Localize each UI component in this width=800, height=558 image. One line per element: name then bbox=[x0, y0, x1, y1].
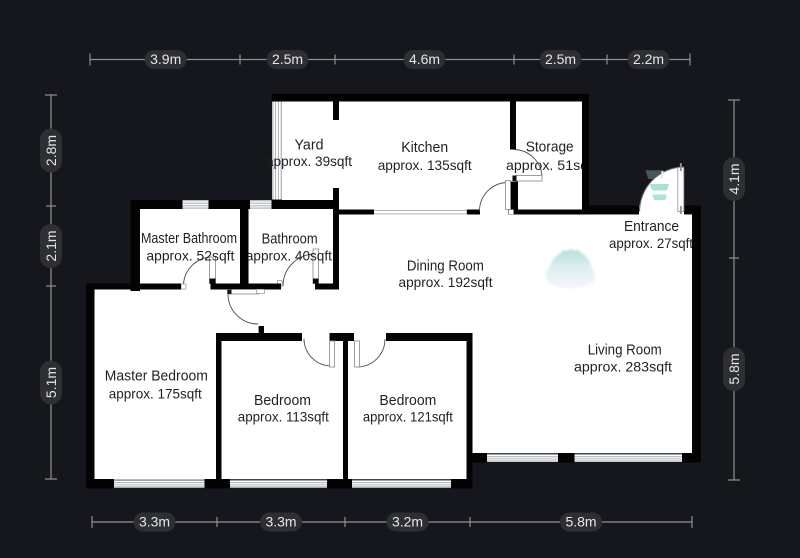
svg-text:approx. 135sqft: approx. 135sqft bbox=[378, 157, 472, 173]
svg-text:approx. 27sqft: approx. 27sqft bbox=[609, 235, 693, 251]
svg-text:Kitchen: Kitchen bbox=[401, 139, 448, 156]
svg-text:4.6m: 4.6m bbox=[409, 51, 440, 67]
svg-text:approx. 192sqft: approx. 192sqft bbox=[399, 274, 493, 290]
svg-text:Yard: Yard bbox=[295, 137, 324, 154]
svg-text:approx. 121sqft: approx. 121sqft bbox=[363, 409, 453, 425]
svg-text:approx. 52sqft: approx. 52sqft bbox=[146, 248, 234, 264]
svg-text:Storage: Storage bbox=[526, 139, 574, 156]
svg-text:Bedroom: Bedroom bbox=[254, 392, 311, 409]
svg-text:Bathroom: Bathroom bbox=[262, 231, 318, 248]
svg-text:approx. 283sqft: approx. 283sqft bbox=[574, 359, 672, 375]
svg-text:3.9m: 3.9m bbox=[150, 51, 181, 67]
svg-text:2.5m: 2.5m bbox=[545, 51, 576, 67]
svg-text:4.1m: 4.1m bbox=[726, 163, 742, 194]
svg-text:2.8m: 2.8m bbox=[43, 135, 59, 166]
svg-text:2.2m: 2.2m bbox=[633, 51, 664, 67]
svg-text:Entrance: Entrance bbox=[624, 218, 679, 235]
svg-text:3.2m: 3.2m bbox=[392, 514, 423, 530]
svg-text:2.5m: 2.5m bbox=[272, 51, 303, 67]
svg-text:approx. 40sqft: approx. 40sqft bbox=[246, 248, 332, 264]
svg-text:5.1m: 5.1m bbox=[43, 367, 59, 398]
svg-text:5.8m: 5.8m bbox=[726, 353, 742, 384]
svg-text:5.8m: 5.8m bbox=[565, 514, 596, 530]
svg-text:2.1m: 2.1m bbox=[43, 230, 59, 261]
svg-text:approx. 113sqft: approx. 113sqft bbox=[238, 409, 329, 425]
svg-text:3.3m: 3.3m bbox=[139, 514, 170, 530]
svg-text:approx. 39sqft: approx. 39sqft bbox=[266, 153, 352, 169]
svg-text:Master Bathroom: Master Bathroom bbox=[141, 230, 237, 247]
svg-text:Master Bedroom: Master Bedroom bbox=[105, 368, 208, 385]
svg-text:3.3m: 3.3m bbox=[265, 514, 296, 530]
svg-text:Dining Room: Dining Room bbox=[407, 258, 484, 275]
svg-text:Bedroom: Bedroom bbox=[379, 392, 436, 409]
svg-text:Living Room: Living Room bbox=[588, 341, 662, 358]
svg-text:approx. 175sqft: approx. 175sqft bbox=[109, 386, 202, 402]
